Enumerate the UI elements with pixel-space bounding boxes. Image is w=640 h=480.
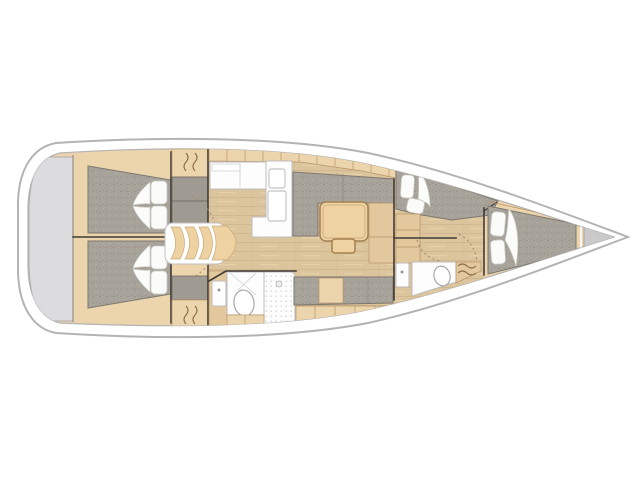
washbasin [212,281,226,306]
pillow [490,240,506,265]
galley-stove [268,191,286,221]
pillow [151,181,167,204]
port-settee [294,277,393,305]
faucet-icon [218,289,221,292]
hanging-locker [172,149,208,177]
swim-platform: Stern transom / swim platform [29,155,73,322]
locker [172,177,208,201]
settee-cushion [319,278,343,303]
pillow [151,271,167,294]
galley-sink [269,169,285,188]
yacht-floorplan: Sailing yacht interior layout — top-down… [0,0,640,480]
pillow [400,175,415,199]
locker [172,276,208,300]
pillow [490,211,506,236]
settee-locker [369,203,394,263]
faucet-icon [401,271,404,274]
shower-tray [264,272,295,326]
galley-fiddle [212,164,240,171]
table-bench [332,239,355,253]
shower-drain-icon [276,281,282,287]
washbasin [396,263,409,287]
floorplan-canvas: Sailing yacht interior layout — top-down… [0,0,640,480]
pillow [151,206,167,229]
saloon-table [320,202,368,241]
locker [172,201,208,225]
